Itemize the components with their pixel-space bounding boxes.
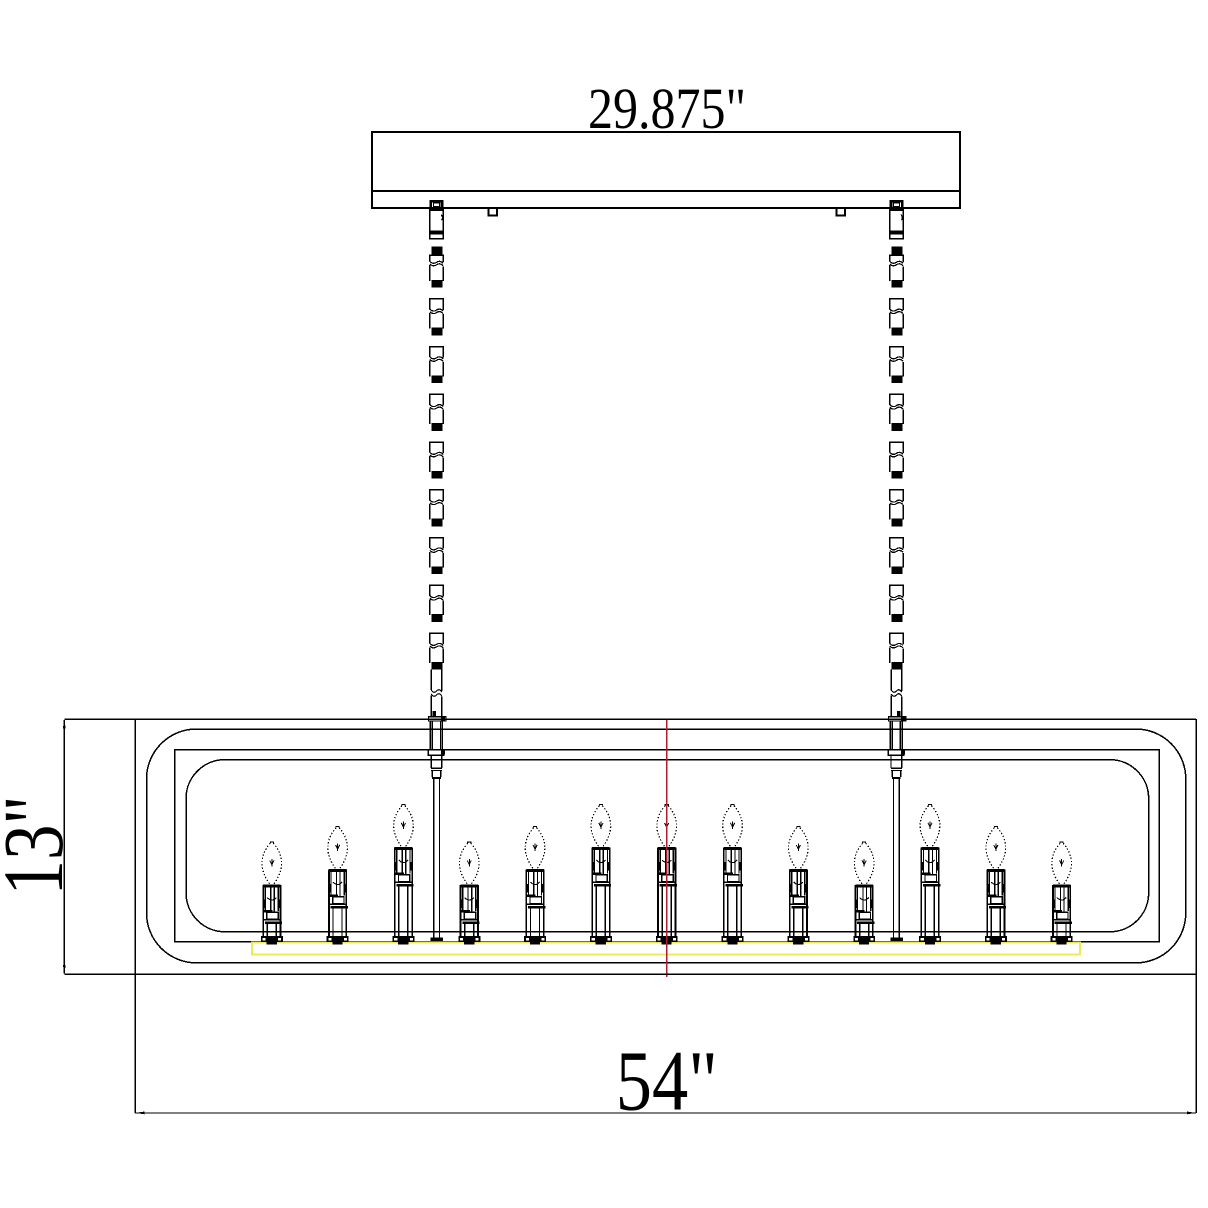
svg-text:29.875": 29.875": [588, 76, 746, 141]
svg-text:54": 54": [616, 1033, 718, 1129]
svg-text:13": 13": [0, 796, 81, 896]
